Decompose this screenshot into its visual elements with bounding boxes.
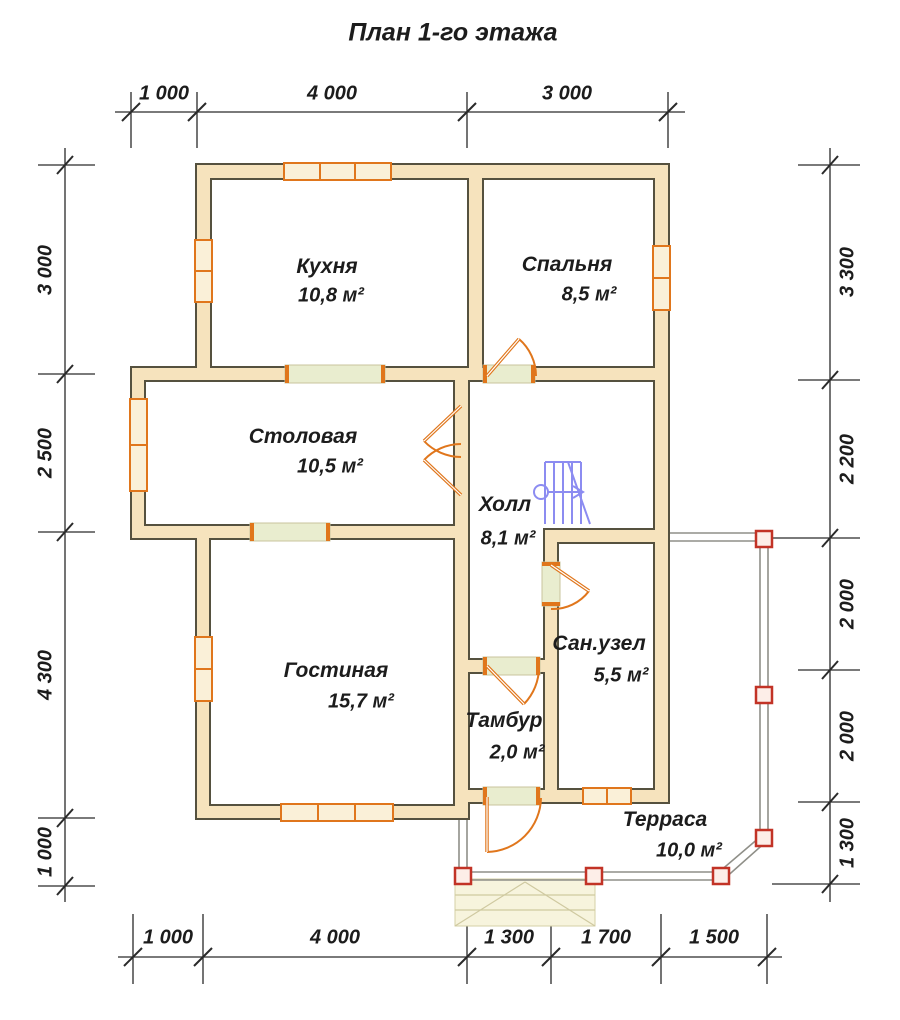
dim-label-top-0: 1 000 [139, 83, 189, 106]
room-area-dining: 10,5 м² [297, 456, 363, 479]
opening-kitchen-dining [285, 365, 385, 383]
dim-label-right-2: 2 000 [837, 579, 860, 629]
dim-label-bottom-4: 1 500 [689, 927, 739, 950]
room-area-terrace: 10,0 м² [656, 840, 722, 863]
room-label-bathroom: Сан.узел [552, 632, 645, 656]
terrace-wall-inner [467, 541, 760, 872]
room-label-terrace: Терраса [623, 808, 707, 832]
stairs-symbol [534, 462, 590, 524]
dim-label-bottom-2: 1 300 [484, 927, 534, 950]
window-dining-left [130, 399, 147, 491]
dim-label-bottom-3: 1 700 [581, 927, 631, 950]
floor-plan-page: План 1-го этажа Кухня 10,8 м² Спальня 8,… [0, 0, 900, 1020]
window-kitchen-top [284, 163, 391, 180]
room-label-kitchen: Кухня [296, 255, 357, 279]
room-label-dining: Столовая [249, 425, 357, 449]
plan-title: План 1-го этажа [348, 19, 557, 48]
doors [424, 339, 589, 852]
room-label-hall: Холл [479, 493, 531, 517]
dim-label-left-0: 3 000 [35, 245, 58, 295]
room-area-vestibule: 2,0 м² [490, 742, 545, 765]
terrace-wall-outer [459, 533, 768, 880]
window-kitchen-left [195, 240, 212, 302]
room-area-living: 15,7 м² [328, 691, 394, 714]
dim-label-left-1: 2 500 [35, 428, 58, 478]
dim-label-left-3: 1 000 [35, 827, 58, 877]
plan-drawing [0, 0, 900, 1020]
opening-entrance-door [483, 787, 540, 805]
room-area-bedroom: 8,5 м² [562, 284, 617, 307]
room-label-bedroom: Спальня [522, 253, 613, 277]
dim-label-right-4: 1 300 [837, 818, 860, 868]
dimension-chain-top [115, 92, 685, 148]
room-area-kitchen: 10,8 м² [298, 285, 364, 308]
dim-label-bottom-1: 4 000 [310, 927, 360, 950]
window-living-bottom [281, 804, 393, 821]
dim-label-right-0: 3 300 [837, 247, 860, 297]
terrace-posts [455, 531, 772, 884]
room-label-living: Гостиная [284, 659, 389, 683]
terrace-structure [455, 531, 772, 884]
window-bedroom-right [653, 246, 670, 310]
dimension-chain-bottom [118, 914, 782, 984]
dim-label-top-1: 4 000 [307, 83, 357, 106]
dim-label-bottom-0: 1 000 [143, 927, 193, 950]
dim-label-left-2: 4 300 [35, 650, 58, 700]
room-label-vestibule: Тамбур [465, 709, 542, 733]
entrance-steps [455, 879, 595, 926]
opening-dining-living [250, 523, 330, 541]
dim-label-right-1: 2 200 [837, 434, 860, 484]
window-bathroom-bottom [583, 788, 631, 804]
dim-label-top-2: 3 000 [542, 83, 592, 106]
room-area-bathroom: 5,5 м² [594, 665, 649, 688]
room-area-hall: 8,1 м² [481, 528, 536, 551]
dim-label-right-3: 2 000 [837, 711, 860, 761]
window-living-left [195, 637, 212, 701]
